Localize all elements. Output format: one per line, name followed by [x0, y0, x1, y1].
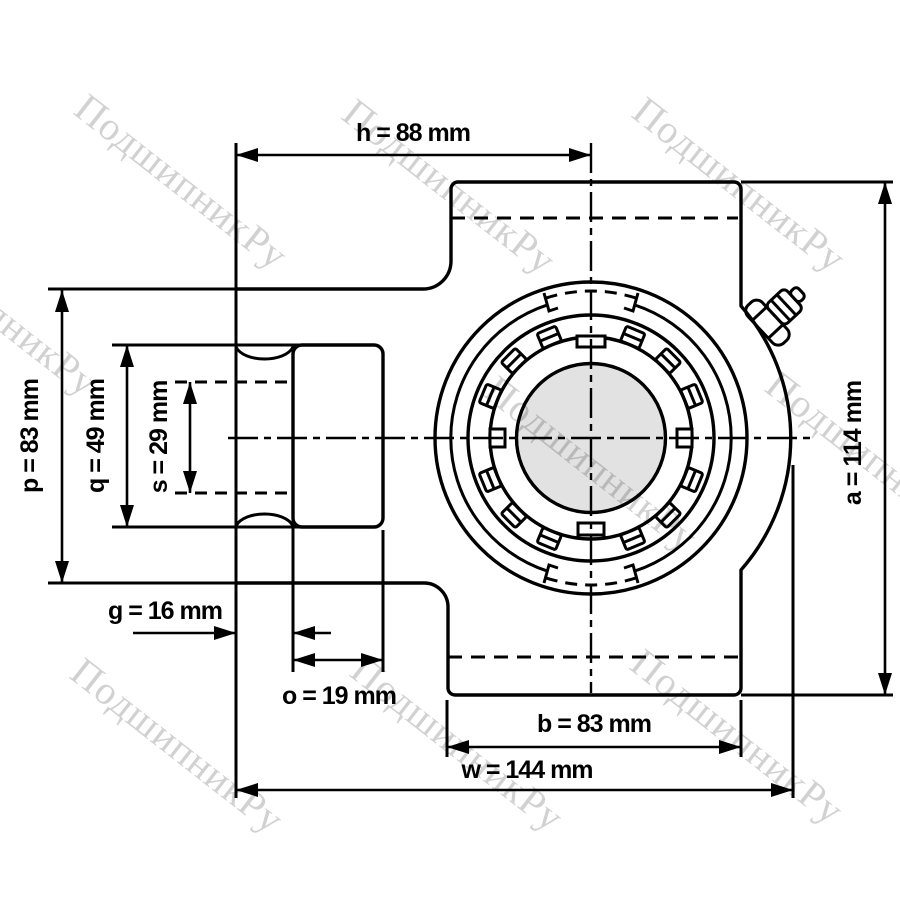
grease-fitting-flat [768, 325, 783, 339]
arrowhead [55, 561, 69, 583]
dimension-s: s = 29 mm [145, 381, 197, 494]
arrowhead [183, 382, 197, 404]
grease-fitting-flat [752, 307, 767, 321]
boss-fillet-top [236, 347, 293, 359]
dim-label-o: o = 19 mm [282, 682, 396, 710]
arrowhead [120, 345, 134, 367]
arrowhead [878, 182, 892, 204]
grease-fitting [742, 272, 818, 348]
arrowhead [214, 626, 236, 640]
dim-label-a: a = 114 mm [839, 381, 867, 505]
arrowhead [183, 471, 197, 493]
dim-label-h: h = 88 mm [356, 119, 470, 147]
watermark-text: ПодшипникРу [62, 649, 292, 843]
grease-fitting-tip [789, 286, 806, 303]
dimension-h: h = 88 mm [236, 119, 591, 162]
dim-label-s: s = 29 mm [145, 381, 173, 494]
housing [48, 143, 893, 798]
arrowhead [569, 148, 591, 162]
grease-fitting-head [765, 288, 803, 326]
dimension-a: a = 114 mm [839, 182, 892, 695]
arrowhead [293, 626, 315, 640]
dim-label-b: b = 83 mm [537, 710, 651, 738]
dim-label-p: p = 83 mm [16, 379, 44, 493]
dim-label-w: w = 144 mm [460, 756, 592, 784]
watermark-text: ПодшипникРу [66, 85, 296, 279]
dimension-w: w = 144 mm [236, 756, 793, 797]
take-up-bearing-unit-drawing: ПодшипникРу ПодшипникРу ПодшипникРу Подш… [0, 0, 900, 900]
hidden-seat-arc-bottom [546, 578, 637, 585]
adjustment-boss [293, 345, 383, 527]
arrowhead [293, 653, 315, 667]
watermark-text: ПодшипникРу [342, 647, 572, 841]
boss-fillet-bottom [236, 514, 293, 526]
arrowhead [120, 505, 134, 527]
watermark-text: ПодшипникРу [0, 212, 107, 406]
dimension-g: g = 16 mm [108, 597, 331, 640]
dim-label-q: q = 49 mm [82, 379, 110, 493]
arrowhead [878, 673, 892, 695]
watermark-text: ПодшипникРу [757, 362, 900, 556]
arrowhead [236, 148, 258, 162]
technical-drawing-page: ПодшипникРу ПодшипникРу ПодшипникРу Подш… [0, 0, 900, 900]
dim-label-g: g = 16 mm [108, 597, 222, 625]
watermark-text: ПодшипникРу [622, 640, 852, 834]
grease-fitting-hex-line [771, 300, 790, 320]
arrowhead [55, 290, 69, 312]
